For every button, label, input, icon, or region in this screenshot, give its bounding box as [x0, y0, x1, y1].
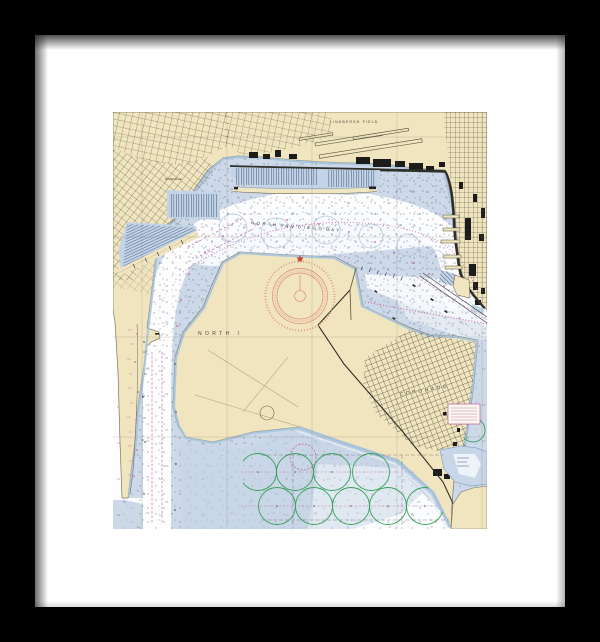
svg-text:ROSEVILLE: ROSEVILLE — [165, 177, 182, 181]
svg-text:LINDBERGH FIELD: LINDBERGH FIELD — [330, 120, 378, 124]
svg-text:NORTH I: NORTH I — [198, 331, 242, 337]
